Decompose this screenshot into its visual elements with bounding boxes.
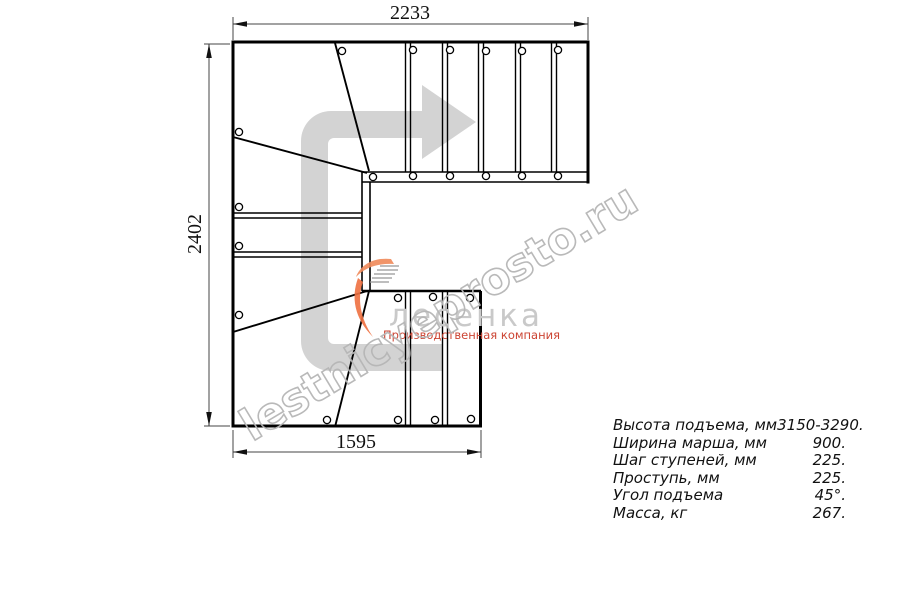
spec-label: Высота подъема, мм: [613, 417, 777, 435]
spec-value: 3150-3290.: [777, 417, 864, 435]
spec-label: Угол подъема: [613, 487, 723, 505]
spec-row: Проступь, мм 225.: [613, 470, 846, 488]
spec-label: Масса, кг: [613, 505, 687, 523]
spec-label: Ширина марша, мм: [613, 435, 767, 453]
spec-row: Шаг ступеней, мм 225.: [613, 452, 846, 470]
spec-value: 225.: [813, 452, 846, 470]
spec-value: 267.: [813, 505, 846, 523]
spec-label: Шаг ступеней, мм: [613, 452, 757, 470]
spec-value: 45°.: [815, 487, 846, 505]
spec-row: Высота подъема, мм 3150-3290.: [613, 417, 846, 435]
stair-plan-page: 2233 2402 1595 лесенка Производственная …: [0, 0, 900, 600]
spec-row: Угол подъема 45°.: [613, 487, 846, 505]
spec-row: Ширина марша, мм 900.: [613, 435, 846, 453]
dimension-top-label: 2233: [390, 2, 430, 24]
spec-table: Высота подъема, мм 3150-3290. Ширина мар…: [613, 417, 846, 523]
spec-value: 900.: [813, 435, 846, 453]
spec-row: Масса, кг 267.: [613, 505, 846, 523]
spec-value: 225.: [813, 470, 846, 488]
dimension-left-label: 2402: [184, 214, 206, 254]
dimension-bottom-label: 1595: [336, 431, 376, 453]
spec-label: Проступь, мм: [613, 470, 720, 488]
